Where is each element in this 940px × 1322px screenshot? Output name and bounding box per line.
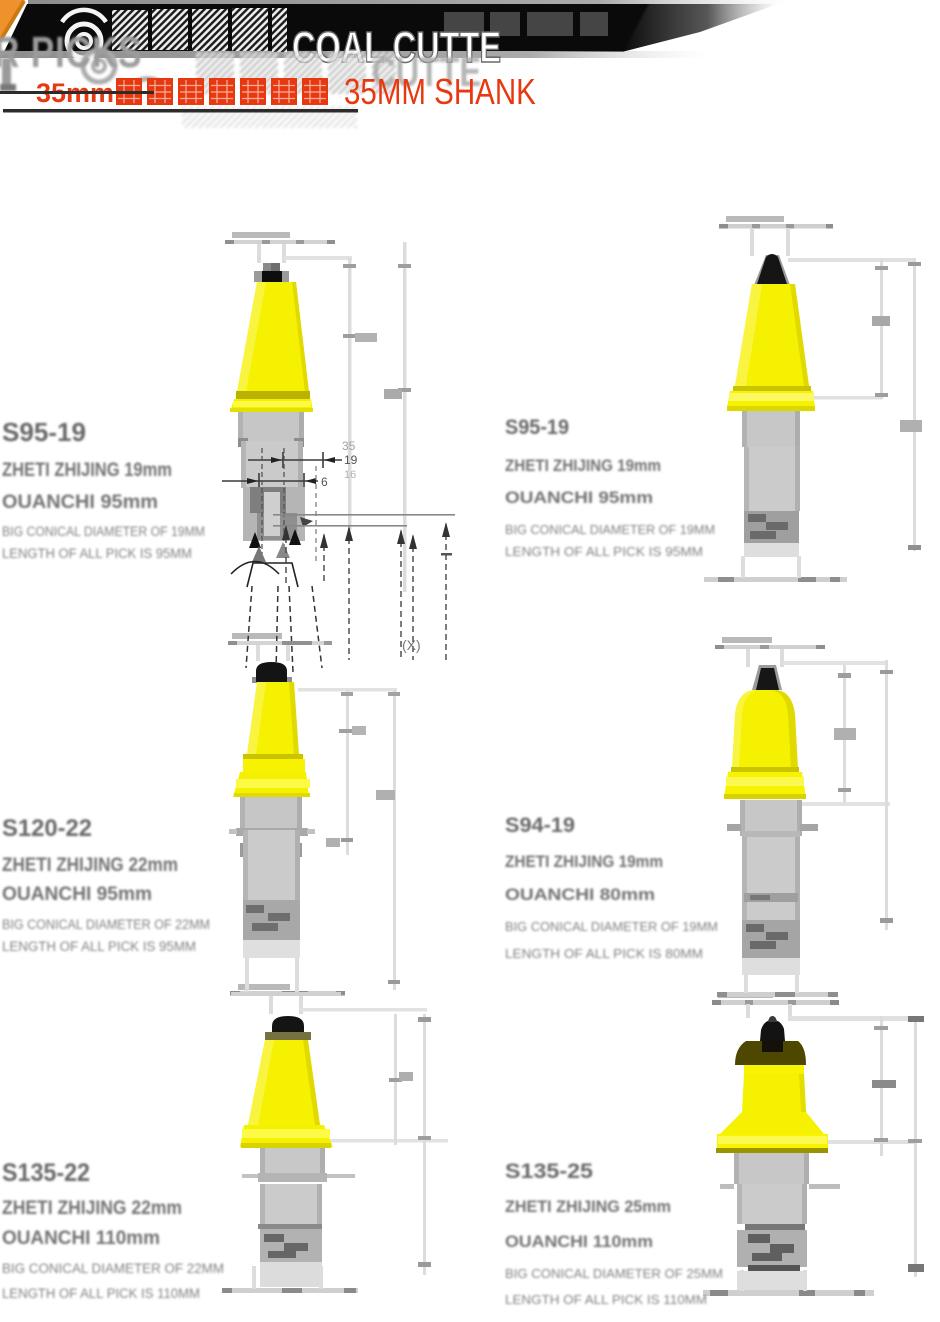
svg-text:S95-19: S95-19 bbox=[2, 417, 86, 447]
svg-text:OUANCHI 80mm: OUANCHI 80mm bbox=[505, 885, 655, 904]
svg-text:ZHETI ZHIJING 25mm: ZHETI ZHIJING 25mm bbox=[505, 1197, 671, 1216]
svg-text:(X): (X) bbox=[402, 637, 421, 653]
svg-text:OUANCHI 110mm: OUANCHI 110mm bbox=[505, 1232, 653, 1251]
svg-text:ZHETI ZHIJING 22mm: ZHETI ZHIJING 22mm bbox=[2, 855, 178, 876]
svg-text:ZHETI ZHIJING 19mm: ZHETI ZHIJING 19mm bbox=[2, 460, 172, 481]
svg-text:19: 19 bbox=[344, 453, 358, 467]
svg-text:ZHETI ZHIJING 22mm: ZHETI ZHIJING 22mm bbox=[2, 1198, 182, 1219]
svg-text:R PICKS: R PICKS bbox=[0, 28, 142, 77]
svg-text:BIG CONICAL DIAMETER OF 19MM: BIG CONICAL DIAMETER OF 19MM bbox=[2, 524, 205, 539]
svg-text:LENGTH OF ALL PICK IS 110MM: LENGTH OF ALL PICK IS 110MM bbox=[505, 1292, 707, 1307]
svg-text:ZHETI ZHIJING 19mm: ZHETI ZHIJING 19mm bbox=[505, 456, 661, 475]
svg-text:16: 16 bbox=[344, 469, 356, 481]
svg-text:ZHETI ZHIJING 19mm: ZHETI ZHIJING 19mm bbox=[505, 852, 663, 871]
svg-text:S94-19: S94-19 bbox=[505, 814, 575, 837]
svg-text:LENGTH OF ALL PICK IS 95MM: LENGTH OF ALL PICK IS 95MM bbox=[2, 939, 196, 954]
svg-text:6: 6 bbox=[321, 475, 328, 489]
svg-text:LENGTH OF ALL PICK IS 95MM: LENGTH OF ALL PICK IS 95MM bbox=[2, 546, 192, 561]
svg-text:35: 35 bbox=[342, 439, 356, 453]
svg-text:OUANCHI 95mm: OUANCHI 95mm bbox=[2, 492, 158, 513]
svg-text:BIG CONICAL DIAMETER OF 25MM: BIG CONICAL DIAMETER OF 25MM bbox=[505, 1266, 723, 1281]
svg-text:BIG CONICAL DIAMETER OF 19MM: BIG CONICAL DIAMETER OF 19MM bbox=[505, 522, 715, 537]
svg-text:35MM SHANK: 35MM SHANK bbox=[344, 71, 536, 111]
svg-text:LENGTH OF ALL PICK IS 80MM: LENGTH OF ALL PICK IS 80MM bbox=[505, 946, 703, 961]
svg-text:S135-25: S135-25 bbox=[505, 1160, 593, 1183]
svg-text:S120-22: S120-22 bbox=[2, 815, 92, 842]
svg-text:OUANCHI 95mm: OUANCHI 95mm bbox=[2, 884, 152, 905]
svg-text:BIG CONICAL DIAMETER OF 22MM: BIG CONICAL DIAMETER OF 22MM bbox=[2, 1261, 224, 1276]
svg-text:LENGTH OF ALL PICK IS 95MM: LENGTH OF ALL PICK IS 95MM bbox=[505, 544, 703, 559]
svg-text:S135-22: S135-22 bbox=[2, 1159, 90, 1187]
svg-text:OUANCHI 110mm: OUANCHI 110mm bbox=[2, 1228, 160, 1249]
svg-text:S95-19: S95-19 bbox=[505, 416, 569, 439]
svg-text:BIG CONICAL DIAMETER OF 19MM: BIG CONICAL DIAMETER OF 19MM bbox=[505, 919, 718, 934]
svg-text:BIG CONICAL DIAMETER OF 22MM: BIG CONICAL DIAMETER OF 22MM bbox=[2, 917, 210, 932]
svg-text:LENGTH OF ALL PICK IS 110MM: LENGTH OF ALL PICK IS 110MM bbox=[2, 1286, 200, 1301]
svg-text:OUANCHI 95mm: OUANCHI 95mm bbox=[505, 488, 653, 507]
